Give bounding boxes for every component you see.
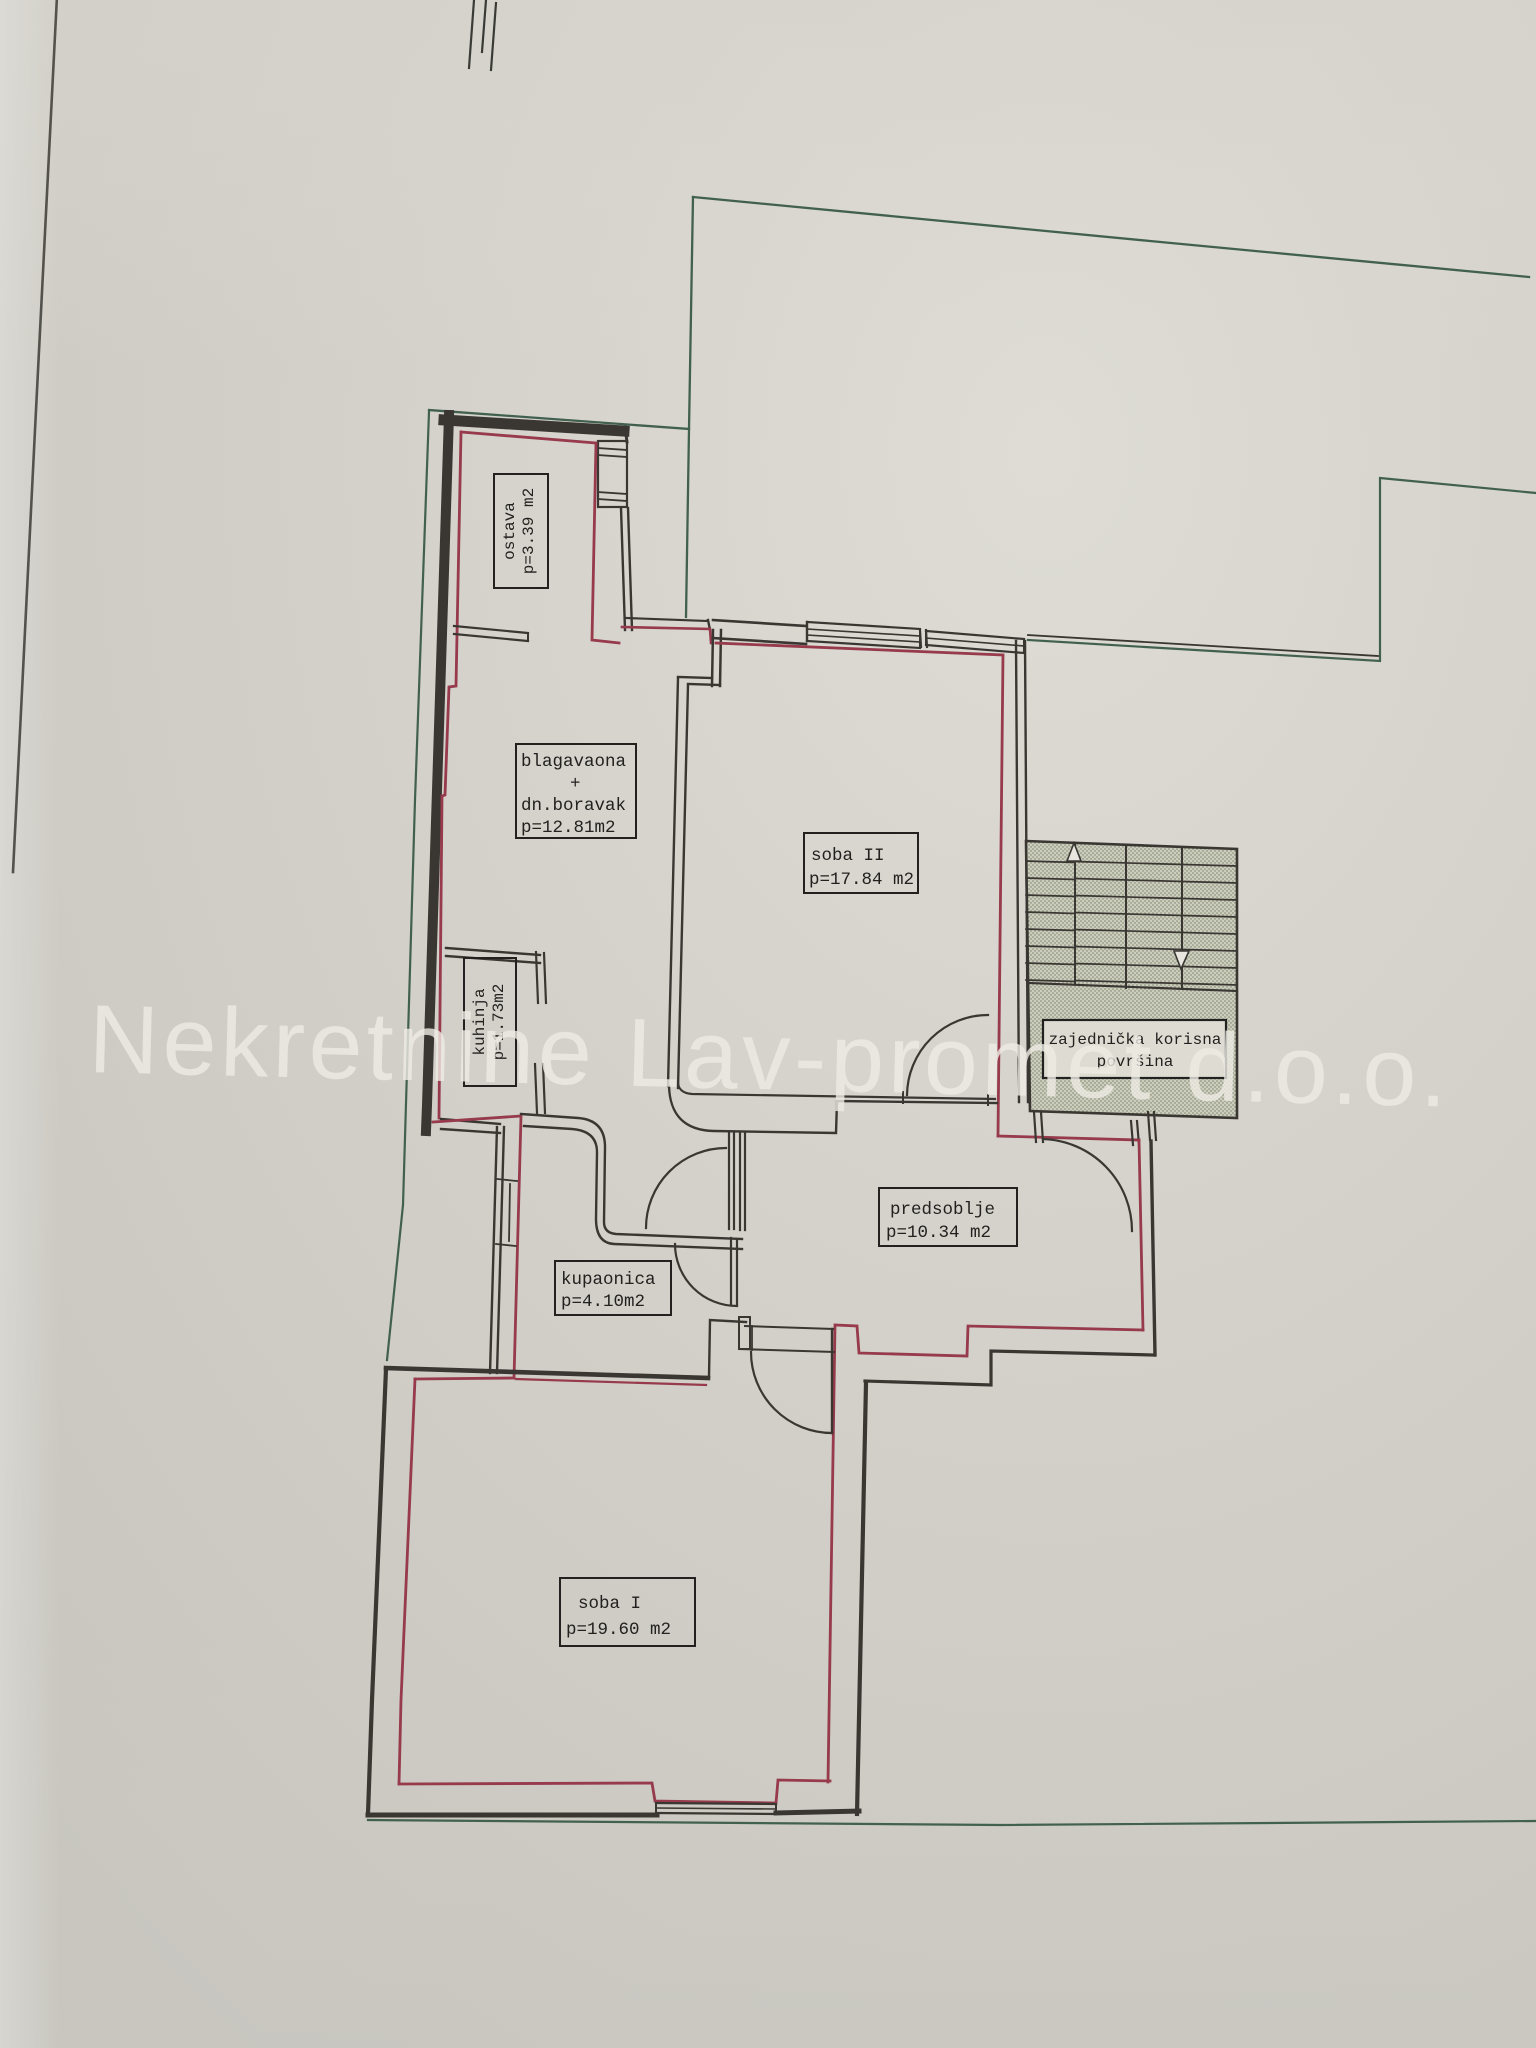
- svg-text:ostava: ostava: [501, 502, 519, 560]
- svg-text:p=17.84 m2: p=17.84 m2: [809, 870, 914, 890]
- svg-text:p=12.81m2: p=12.81m2: [521, 818, 616, 838]
- svg-text:p=4.10m2: p=4.10m2: [561, 1292, 645, 1312]
- svg-text:kupaonica: kupaonica: [561, 1270, 656, 1290]
- svg-text:soba I: soba I: [578, 1594, 641, 1614]
- svg-text:soba II: soba II: [811, 846, 885, 866]
- svg-text:blagavaona: blagavaona: [521, 752, 626, 772]
- svg-text:p=10.34 m2: p=10.34 m2: [886, 1223, 991, 1243]
- svg-text:+: +: [570, 774, 581, 794]
- svg-text:p=19.60 m2: p=19.60 m2: [566, 1620, 671, 1640]
- svg-text:dn.boravak: dn.boravak: [521, 796, 626, 816]
- svg-text:p=3.39 m2: p=3.39 m2: [520, 488, 538, 574]
- svg-text:predsoblje: predsoblje: [890, 1200, 995, 1220]
